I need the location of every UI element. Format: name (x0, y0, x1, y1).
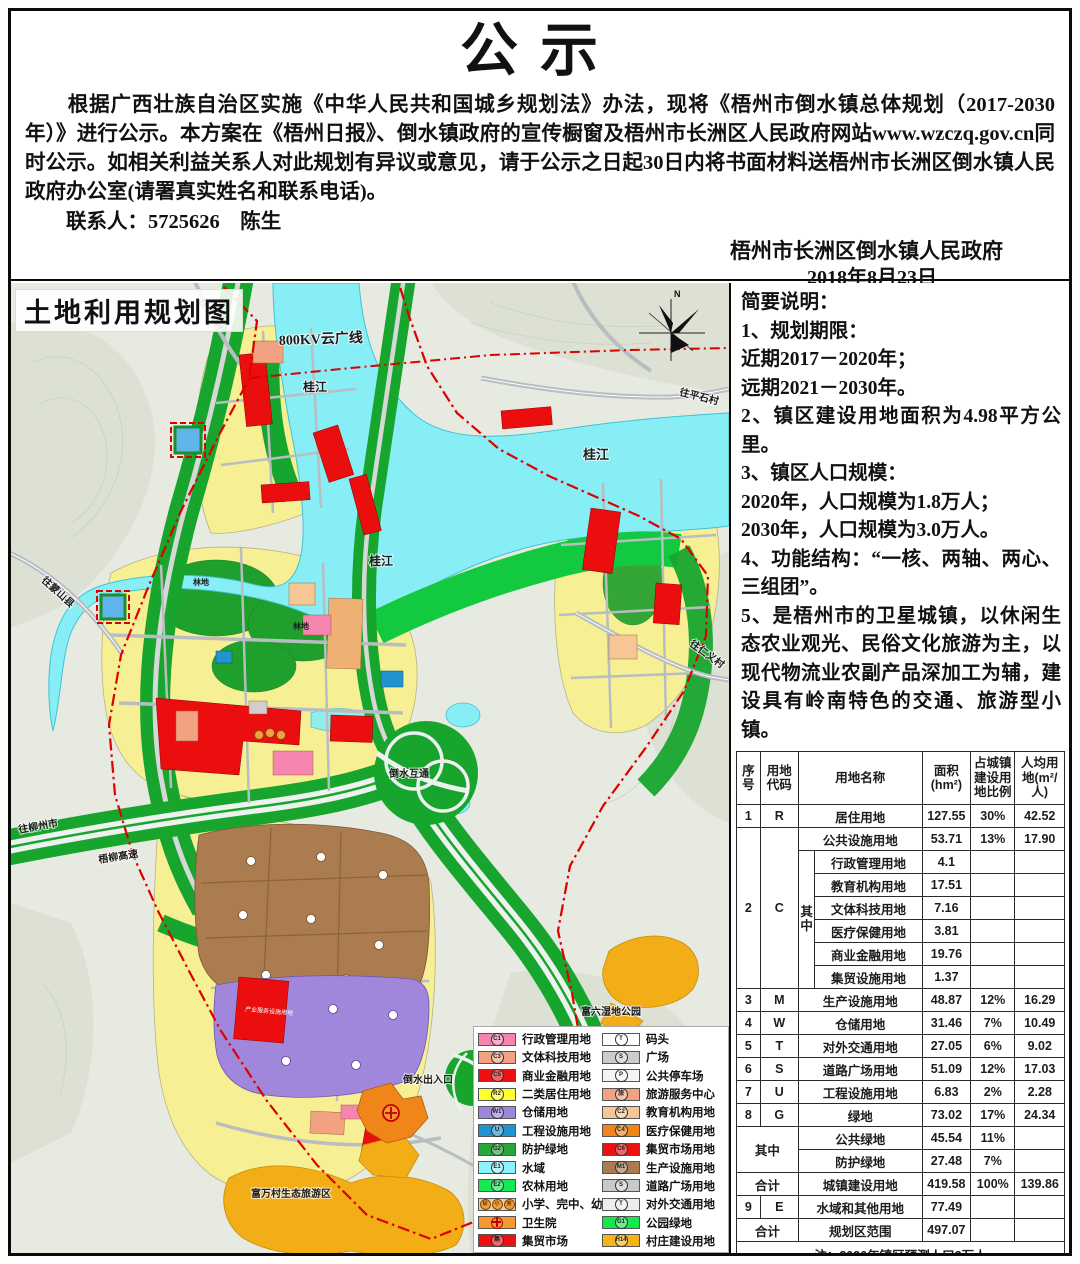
hospital-cross-icon (491, 1217, 503, 1229)
brief-description: 简要说明： 1、规划期限： 近期2017－2020年； 远期2021－2030年… (731, 283, 1069, 749)
table-row: 5T 对外交通用地27.05 6%9.02 (737, 1035, 1065, 1058)
col-seq: 序号 (737, 752, 761, 805)
legend-swatch-c5: C5 (478, 1069, 516, 1082)
map-title: 土地利用规划图 (15, 289, 243, 332)
legend-item: G1公园绿地 (602, 1214, 726, 1232)
legend-item: H14村庄建设用地 (602, 1232, 726, 1250)
legend-swatch-square: S (602, 1051, 640, 1064)
legend-swatch-wharf: T (602, 1033, 640, 1046)
brief-line: 2、镇区建设用地面积为4.98平方公里。 (741, 403, 1061, 460)
col-ratio: 占城镇建设用地比例 (971, 752, 1015, 805)
map-legend: C1行政管理用地 C3文体科技用地 C5商业金融用地 R2二类居住用地 W1仓储… (473, 1026, 729, 1253)
legend-swatch-tourism: 旅 (602, 1088, 640, 1101)
table-row: 合计 城镇建设用地419.58 100%139.86 (737, 1173, 1065, 1196)
brief-line: 2020年，人口规模为1.8万人； (741, 489, 1061, 518)
legend-swatch-road-square: S (602, 1179, 640, 1192)
map-region: N 800KV云广线 桂江 桂江 桂江 往平石村 往仁义村 往蒙山县 往蒲冲村 … (11, 283, 729, 1253)
legend-item: M1生产设施用地 (602, 1159, 726, 1177)
legend-item: G2防护绿地 (478, 1140, 602, 1158)
legend-swatch-c4: C4 (602, 1124, 640, 1137)
table-row: 其中 公共绿地45.54 11% (737, 1127, 1065, 1150)
legend-swatch-transport: T (602, 1198, 640, 1211)
notice-header: 公示 根据广西壮族自治区实施《中华人民共和国城乡规划法》办法，现将《梧州市倒水镇… (11, 11, 1069, 281)
legend-swatch-hospital (478, 1216, 516, 1229)
brief-line: 5、是梧州市的卫星城镇，以休闲生态农业观光、民俗文化旅游为主，以现代物流业农副产… (741, 603, 1061, 746)
legend-item: E2农林用地 (478, 1177, 602, 1195)
landuse-table-wrap: 序号 用地代码 用地名称 面积(hm²) 占城镇建设用地比例 人均用地(m²/人… (731, 749, 1069, 1253)
label-river-east: 桂江 (582, 447, 609, 462)
legend-swatch-w1: W1 (478, 1106, 516, 1119)
legend-swatch-market: 集 (478, 1234, 516, 1247)
legend-item: 集集贸市场 (478, 1232, 602, 1250)
col-code: 用地代码 (760, 752, 798, 805)
brief-line: 远期2021－2030年。 (741, 375, 1061, 404)
legend-item: C4医疗保健用地 (602, 1122, 726, 1140)
legend-swatch-c2: C2 (602, 1106, 640, 1119)
legend-item: T对外交通用地 (602, 1195, 726, 1213)
legend-swatch-c6: C6 (602, 1143, 640, 1156)
legend-swatch-g1: G1 (602, 1216, 640, 1229)
table-row: 2 C 公共设施用地53.71 13%17.90 (737, 828, 1065, 851)
brief-line: 近期2017－2020年； (741, 346, 1061, 375)
table-row: 6S 道路广场用地51.09 12%17.03 (737, 1058, 1065, 1081)
col-name: 用地名称 (798, 752, 922, 805)
legend-item: R2二类居住用地 (478, 1085, 602, 1103)
brief-line: 4、功能结构：“一核、两轴、两心、三组团”。 (741, 546, 1061, 603)
public-notice-page: 公示 根据广西壮族自治区实施《中华人民共和国城乡规划法》办法，现将《梧州市倒水镇… (0, 0, 1080, 1264)
legend-swatch-e1: E1 (478, 1161, 516, 1174)
table-row: 7U 工程设施用地6.83 2%2.28 (737, 1081, 1065, 1104)
legend-item: E1水域 (478, 1159, 602, 1177)
col-area: 面积(hm²) (922, 752, 970, 805)
table-row: 8G 绿地73.02 17%24.34 (737, 1104, 1065, 1127)
legend-item: T码头 (602, 1030, 726, 1048)
brief-line: 简要说明： (741, 289, 1061, 318)
legend-item: S道路广场用地 (602, 1177, 726, 1195)
table-row: 合计 规划区范围497.07 (737, 1219, 1065, 1242)
table-header-row: 序号 用地代码 用地名称 面积(hm²) 占城镇建设用地比例 人均用地(m²/人… (737, 752, 1065, 805)
legend-column-left: C1行政管理用地 C3文体科技用地 C5商业金融用地 R2二类居住用地 W1仓储… (478, 1030, 602, 1250)
table-row: 4W 仓储用地31.46 7%10.49 (737, 1012, 1065, 1035)
legend-swatch-g2: G2 (478, 1143, 516, 1156)
legend-item: C6集贸市场用地 (602, 1140, 726, 1158)
legend-item: 旅旅游服务中心 (602, 1085, 726, 1103)
label-forest-1: 林地 (193, 577, 209, 587)
legend-swatch-r2: R2 (478, 1088, 516, 1101)
label-interchange: 倒水互通 (388, 767, 429, 780)
legend-item: U工程设施用地 (478, 1122, 602, 1140)
brief-line: 3、镇区人口规模： (741, 460, 1061, 489)
brief-line: 1、规划期限： (741, 318, 1061, 347)
legend-column-right: T码头 S广场 P公共停车场 旅旅游服务中心 C2教育机构用地 C4医疗保健用地… (602, 1030, 726, 1250)
issuer-line: 梧州市长洲区倒水镇人民政府 (25, 237, 1055, 265)
legend-swatch-c3: C3 (478, 1051, 516, 1064)
label-wetland-park: 富六湿地公园 (581, 1005, 641, 1018)
qizhong-cell: 其中 (798, 851, 815, 989)
landuse-table: 序号 用地代码 用地名称 面积(hm²) 占城镇建设用地比例 人均用地(m²/人… (736, 751, 1065, 1253)
legend-item: S广场 (602, 1048, 726, 1066)
legend-swatch-h14: H14 (602, 1234, 640, 1247)
legend-swatch-parking: P (602, 1069, 640, 1082)
label-river-top: 桂江 (302, 379, 327, 394)
population-note: 注：2030年镇区预测人口3万人 (737, 1242, 1065, 1254)
table-row: 9E 水域和其他用地77.49 (737, 1196, 1065, 1219)
content-split: N 800KV云广线 桂江 桂江 桂江 往平石村 往仁义村 往蒙山县 往蒲冲村 … (11, 283, 1069, 1253)
brief-line: 2030年，人口规模为3.0万人。 (741, 517, 1061, 546)
legend-swatch-c1: C1 (478, 1033, 516, 1046)
table-row: 3M 生产设施用地48.87 12%16.29 (737, 989, 1065, 1012)
notice-title: 公示 (25, 15, 1055, 87)
legend-swatch-e2: E2 (478, 1179, 516, 1192)
legend-item: 幼小完小学、完中、幼儿园 (478, 1195, 602, 1213)
label-forest-2: 林地 (293, 621, 309, 631)
col-percapita: 人均用地(m²/人) (1015, 752, 1065, 805)
label-river-west: 桂江 (368, 553, 393, 568)
legend-item: W1仓储用地 (478, 1103, 602, 1121)
legend-item: C2教育机构用地 (602, 1103, 726, 1121)
label-ecotourism: 富万村生态旅游区 (251, 1187, 331, 1200)
info-panel: 简要说明： 1、规划期限： 近期2017－2020年； 远期2021－2030年… (729, 283, 1069, 1253)
legend-item: C3文体科技用地 (478, 1048, 602, 1066)
legend-item: C1行政管理用地 (478, 1030, 602, 1048)
school-markers (255, 729, 286, 740)
outer-frame: 公示 根据广西壮族自治区实施《中华人民共和国城乡规划法》办法，现将《梧州市倒水镇… (8, 8, 1072, 1256)
legend-swatch-u: U (478, 1124, 516, 1137)
legend-item: P公共停车场 (602, 1067, 726, 1085)
table-row: 1R 居住用地127.55 30%42.52 (737, 805, 1065, 828)
legend-swatch-school: 幼小完 (478, 1198, 516, 1211)
table-note-row: 注：2030年镇区预测人口3万人 (737, 1242, 1065, 1254)
legend-item: C5商业金融用地 (478, 1067, 602, 1085)
qizhong-cell: 其中 (737, 1127, 799, 1173)
label-exit: 倒水出入口 (402, 1073, 453, 1086)
legend-swatch-m1: M1 (602, 1161, 640, 1174)
notice-body: 根据广西壮族自治区实施《中华人民共和国城乡规划法》办法，现将《梧州市倒水镇总体规… (25, 91, 1055, 207)
contact-line: 联系人：5725626 陈生 (25, 207, 1055, 237)
legend-item: 卫生院 (478, 1214, 602, 1232)
svg-text:N: N (674, 289, 681, 299)
